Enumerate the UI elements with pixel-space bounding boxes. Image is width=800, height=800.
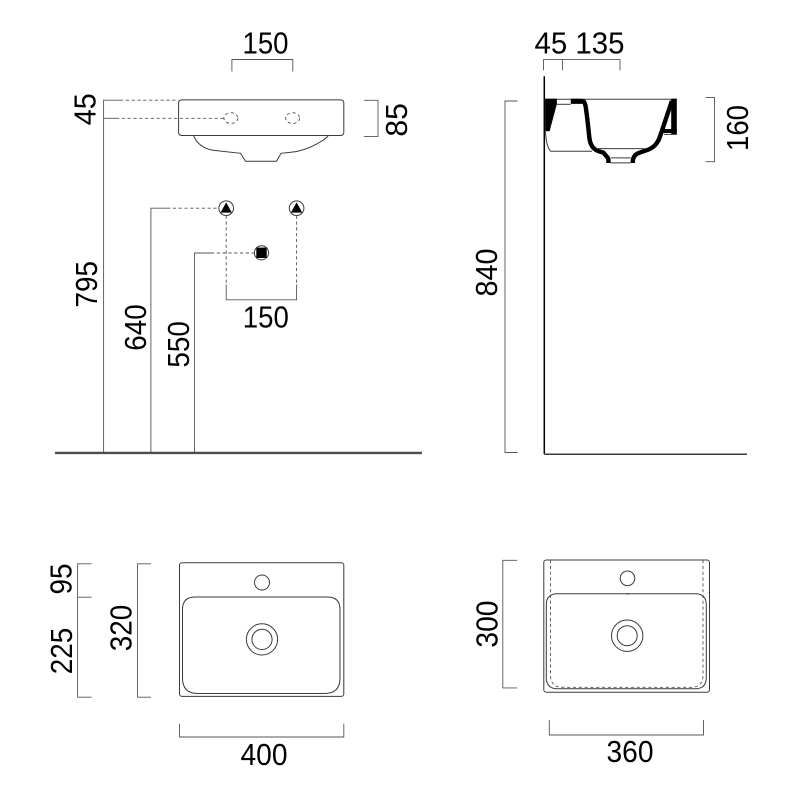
- svg-text:95: 95: [45, 564, 79, 595]
- svg-text:225: 225: [45, 628, 79, 675]
- svg-text:550: 550: [162, 321, 196, 368]
- svg-text:160: 160: [721, 105, 755, 151]
- svg-text:300: 300: [471, 601, 505, 648]
- svg-text:795: 795: [70, 261, 104, 308]
- svg-text:150: 150: [243, 301, 289, 335]
- svg-text:360: 360: [607, 735, 654, 769]
- svg-text:45 135: 45 135: [535, 27, 625, 61]
- svg-text:320: 320: [105, 605, 139, 652]
- svg-text:150: 150: [243, 27, 289, 61]
- svg-text:640: 640: [119, 304, 153, 351]
- svg-text:85: 85: [380, 103, 414, 136]
- svg-text:840: 840: [470, 249, 504, 297]
- svg-text:45: 45: [69, 93, 103, 125]
- svg-text:400: 400: [241, 738, 288, 772]
